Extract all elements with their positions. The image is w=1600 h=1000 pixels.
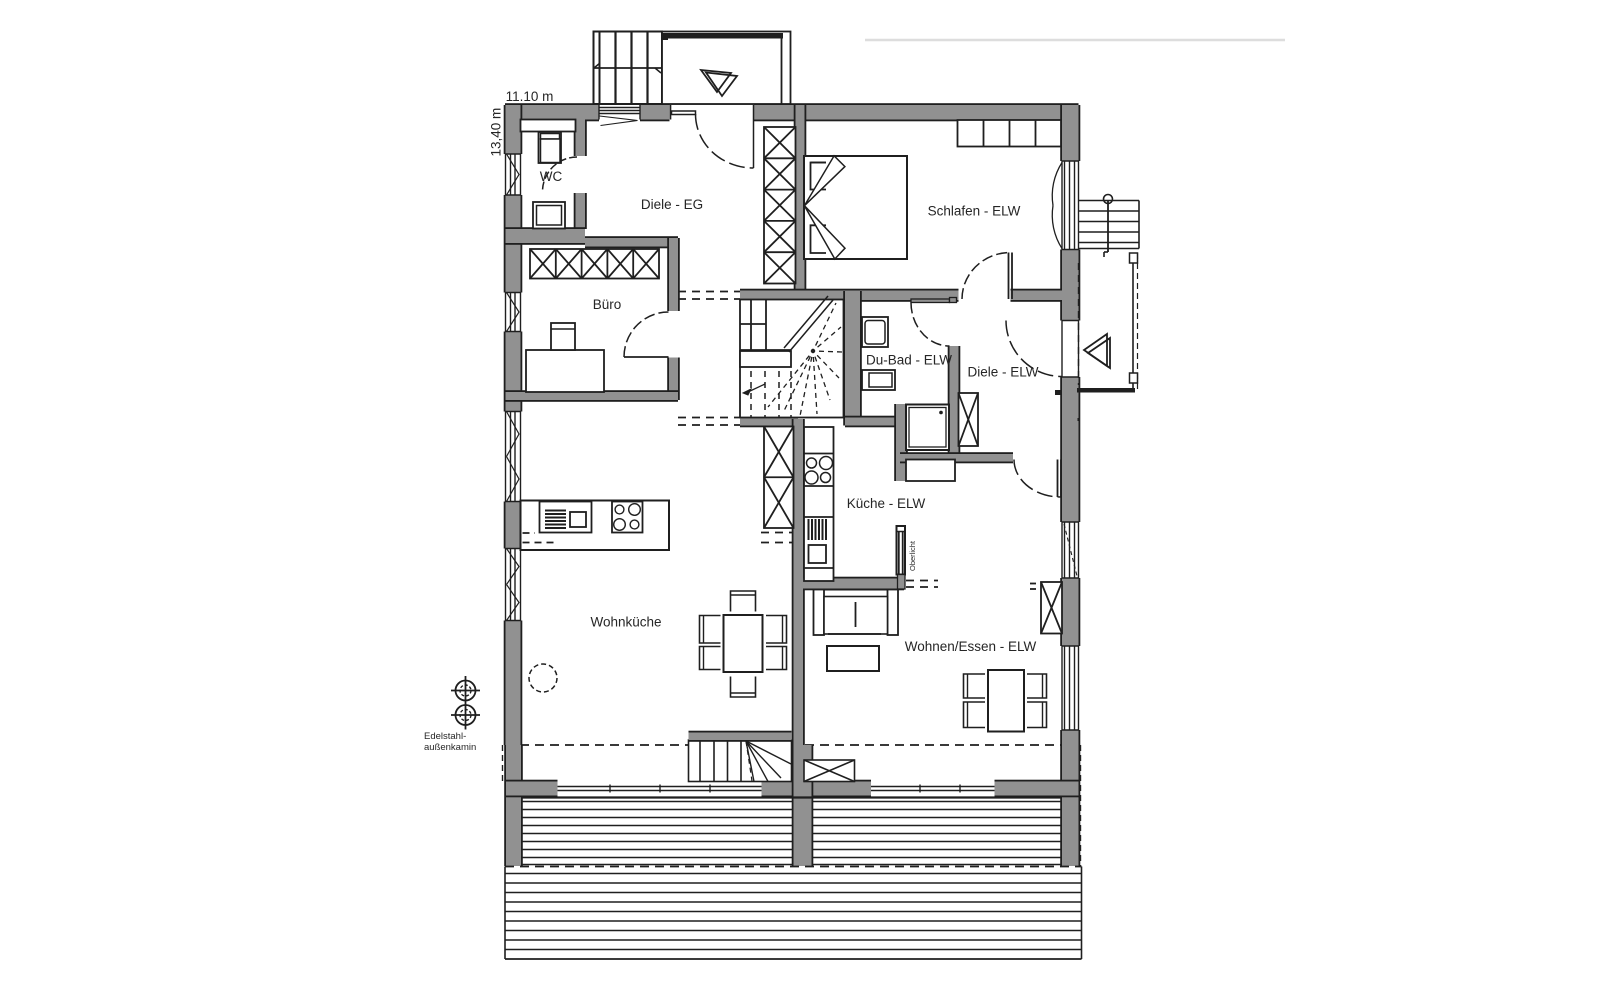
- svg-text:Küche - ELW: Küche - ELW: [847, 496, 926, 511]
- svg-text:11.10 m: 11.10 m: [506, 89, 554, 104]
- svg-text:Du-Bad - ELW: Du-Bad - ELW: [866, 353, 952, 368]
- svg-text:Wohnen/Essen - ELW: Wohnen/Essen - ELW: [905, 639, 1037, 654]
- svg-text:WC: WC: [540, 169, 563, 184]
- svg-text:13,40 m: 13,40 m: [489, 108, 504, 157]
- svg-text:außenkamin: außenkamin: [424, 742, 476, 753]
- svg-text:Diele - ELW: Diele - ELW: [967, 365, 1038, 380]
- svg-text:Schlafen - ELW: Schlafen - ELW: [928, 204, 1021, 219]
- svg-text:Edelstahl-: Edelstahl-: [424, 731, 466, 742]
- svg-text:Wohnküche: Wohnküche: [590, 615, 661, 630]
- svg-text:Diele - EG: Diele - EG: [641, 197, 703, 212]
- svg-text:Büro: Büro: [593, 297, 622, 312]
- svg-text:Oberlicht: Oberlicht: [908, 540, 917, 571]
